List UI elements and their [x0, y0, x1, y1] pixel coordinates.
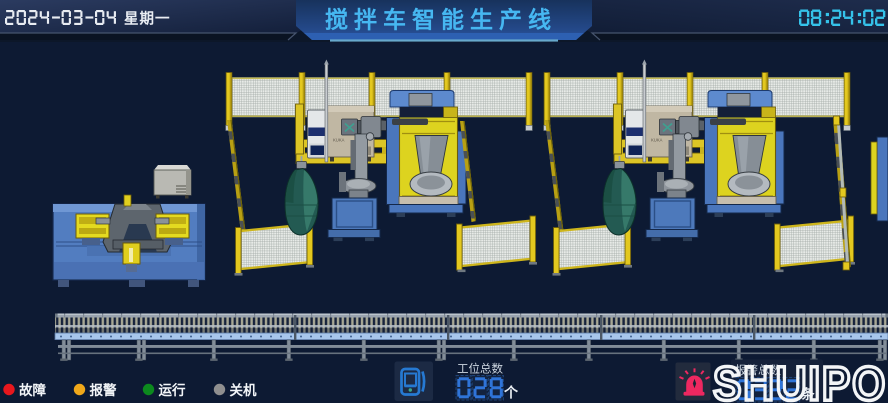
- svg-text:个: 个: [503, 385, 519, 401]
- svg-text:KUKA: KUKA: [333, 138, 345, 143]
- svg-text:搅拌车智能生产线: 搅拌车智能生产线: [325, 7, 557, 33]
- svg-text:KUKA: KUKA: [651, 138, 663, 143]
- svg-text:运行: 运行: [159, 382, 186, 398]
- svg-text:故障: 故障: [19, 382, 46, 398]
- svg-text:关机: 关机: [230, 382, 257, 398]
- svg-text:报警: 报警: [90, 382, 117, 398]
- svg-text:工位总数: 工位总数: [457, 362, 503, 376]
- svg-text:SHUIPO: SHUIPO: [713, 358, 887, 403]
- svg-text:星期一: 星期一: [124, 10, 171, 28]
